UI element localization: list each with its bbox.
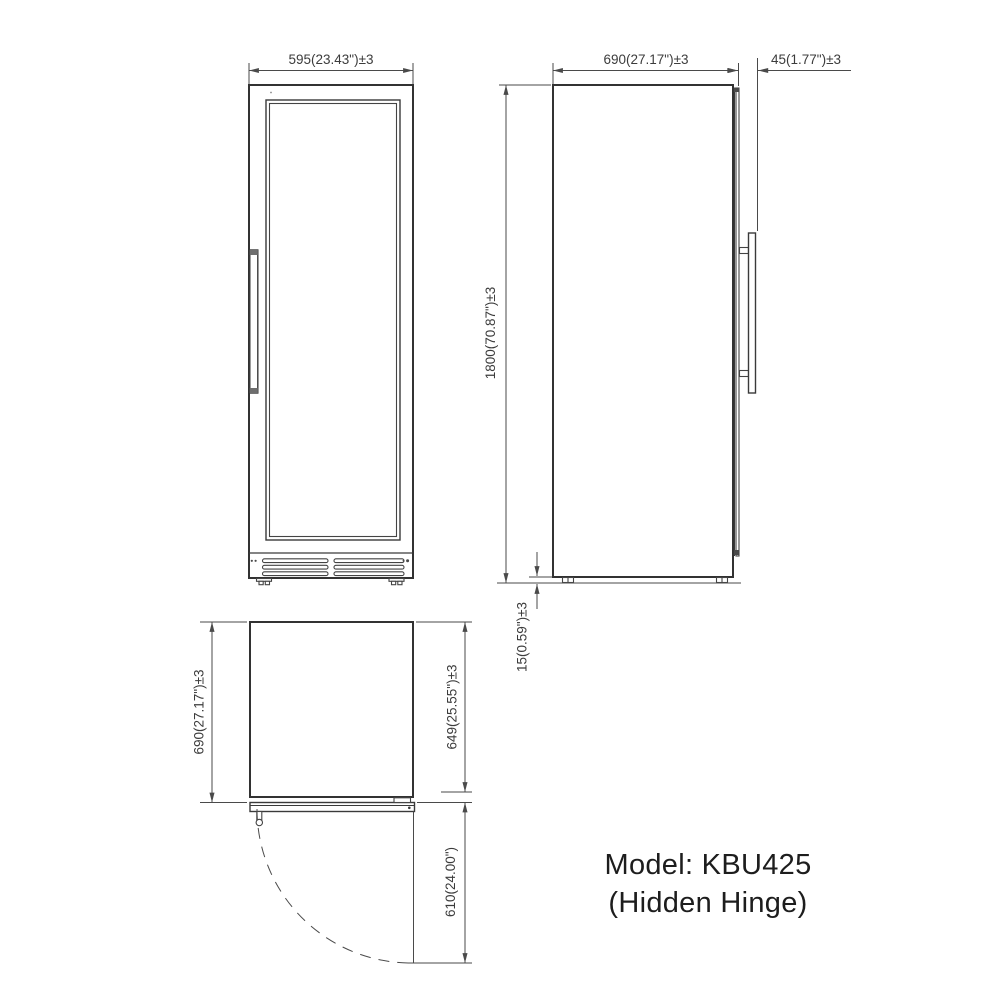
front-feet [257, 579, 405, 585]
handle-cap-top [250, 250, 258, 255]
hinge-pivot-dot [408, 807, 411, 810]
handle-bar [749, 233, 756, 393]
side-door-depth-label: 45(1.77")±3 [771, 52, 841, 67]
side-height-label: 1800(70.87")±3 [483, 287, 498, 380]
glass-door-frame-inner [270, 104, 397, 537]
handle-cap-bottom [250, 388, 258, 393]
top-door [250, 798, 415, 826]
side-door-depth-dimension: 45(1.77")±3 [727, 52, 851, 231]
model-title-line1: Model: KBU425 [604, 849, 811, 881]
door-mark [270, 92, 272, 94]
model-title: Model: KBU425 (Hidden Hinge) [604, 849, 811, 919]
side-view: 690(27.17")±3 45(1.77")±3 1800(70.87")±3 [483, 52, 851, 672]
side-foot-height-label: 15(0.59")±3 [515, 602, 530, 672]
handle-plan-knob [256, 819, 262, 825]
front-door-handle [250, 250, 258, 393]
side-depth-label: 690(27.17")±3 [603, 52, 688, 67]
screw-dot [251, 560, 253, 562]
top-view: 690(27.17")±3 649(25.55")±3 610(24.00") [192, 622, 473, 963]
door-slab [736, 88, 739, 556]
front-view: 595(23.43")±3 [249, 52, 413, 585]
door-plan [250, 803, 415, 812]
screw-dot [255, 560, 257, 562]
handle-standoff [740, 371, 749, 377]
side-depth-dimension: 690(27.17")±3 [553, 52, 739, 86]
side-foot-height-dimension: 15(0.59")±3 [515, 552, 553, 672]
screw-dot [403, 560, 405, 562]
side-feet [563, 578, 728, 583]
side-height-dimension: 1800(70.87")±3 [483, 85, 551, 583]
front-width-dimension: 595(23.43")±3 [249, 52, 413, 84]
top-door-swing-dimension: 610(24.00") [408, 803, 472, 964]
top-depth-label: 690(27.17")±3 [192, 669, 207, 754]
hidden-hinge-bottom [734, 550, 739, 555]
screw-dot [406, 559, 409, 562]
model-title-line2: (Hidden Hinge) [608, 887, 807, 919]
dimension-drawing: 595(23.43")±3 [0, 0, 1000, 1000]
side-door-handle [740, 233, 756, 393]
door-swing-arc [257, 809, 411, 963]
handle-standoff [740, 248, 749, 254]
side-cabinet-body [553, 85, 733, 577]
top-door-swing-label: 610(24.00") [443, 847, 458, 917]
top-body-depth-label: 649(25.55")±3 [445, 664, 460, 749]
top-depth-dimension: 690(27.17")±3 [192, 622, 248, 803]
hidden-hinge-top [734, 88, 739, 93]
side-door [734, 88, 739, 557]
technical-drawing-page: 595(23.43")±3 [0, 0, 1000, 1000]
top-body-depth-dimension: 649(25.55")±3 [416, 622, 472, 792]
hidden-hinge-plate [394, 798, 411, 803]
top-cabinet-body [250, 622, 413, 797]
front-width-label: 595(23.43")±3 [288, 52, 373, 67]
